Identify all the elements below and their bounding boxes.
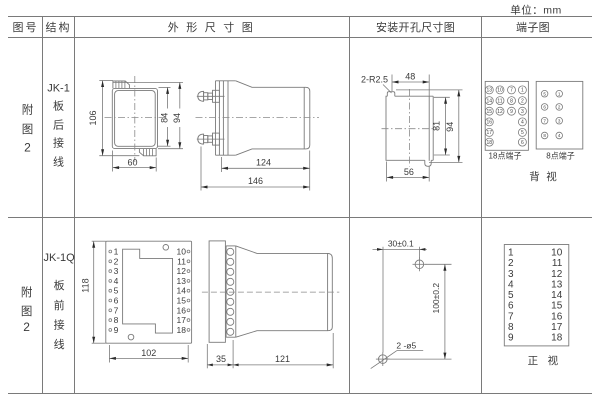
svg-text:正: 正 [528, 355, 539, 367]
svg-text:6: 6 [114, 296, 119, 306]
svg-text:4: 4 [114, 276, 119, 286]
svg-text:11: 11 [497, 98, 502, 104]
svg-text:17: 17 [551, 322, 563, 333]
svg-text:14: 14 [177, 286, 187, 296]
svg-text:线: 线 [54, 337, 65, 351]
svg-text:12: 12 [177, 266, 187, 276]
svg-text:7: 7 [508, 311, 514, 322]
svg-text:9: 9 [114, 325, 119, 335]
svg-text:102: 102 [141, 348, 156, 358]
svg-text:外形尺寸图: 外形尺寸图 [168, 20, 261, 34]
svg-text:81: 81 [432, 121, 442, 131]
svg-text:8: 8 [114, 315, 119, 325]
svg-text:接: 接 [54, 318, 65, 331]
svg-text:12: 12 [551, 269, 563, 280]
svg-text:7: 7 [510, 88, 513, 94]
svg-text:1: 1 [521, 88, 524, 94]
svg-text:3: 3 [114, 266, 119, 276]
svg-text:18点端子: 18点端子 [489, 151, 522, 161]
svg-text:JK-1: JK-1 [47, 83, 70, 95]
svg-text:2: 2 [521, 98, 524, 104]
svg-text:JK-1Q: JK-1Q [44, 252, 76, 264]
svg-text:2: 2 [24, 141, 31, 155]
svg-text:16: 16 [551, 311, 563, 322]
svg-text:7: 7 [114, 305, 119, 315]
svg-text:14: 14 [551, 290, 563, 301]
svg-text:8: 8 [510, 98, 513, 104]
svg-text:16: 16 [177, 305, 187, 315]
svg-text:124: 124 [256, 157, 271, 167]
svg-text:146: 146 [248, 176, 263, 186]
svg-text:13: 13 [177, 276, 187, 286]
svg-text:8点端子: 8点端子 [546, 151, 574, 161]
svg-text:13: 13 [487, 88, 493, 94]
svg-text:10: 10 [551, 248, 563, 259]
svg-text:9: 9 [508, 332, 514, 343]
svg-text:3: 3 [558, 118, 561, 123]
svg-text:板: 板 [54, 278, 65, 292]
svg-text:6: 6 [508, 301, 514, 312]
svg-text:安装开孔尺寸图: 安装开孔尺寸图 [376, 20, 455, 34]
svg-text:17: 17 [487, 130, 493, 136]
svg-text:图: 图 [21, 305, 33, 318]
svg-text:9: 9 [510, 109, 513, 115]
svg-text:3: 3 [521, 109, 524, 115]
svg-text:2-R2.5: 2-R2.5 [361, 75, 388, 85]
svg-text:30±0.1: 30±0.1 [388, 238, 414, 248]
svg-text:结构: 结构 [46, 20, 72, 34]
svg-text:5: 5 [114, 286, 119, 296]
svg-text:1: 1 [558, 91, 561, 96]
svg-text:线: 线 [53, 155, 64, 169]
svg-text:2: 2 [558, 105, 561, 110]
svg-text:18: 18 [177, 325, 187, 335]
svg-text:11: 11 [552, 258, 563, 269]
svg-text:118: 118 [81, 278, 91, 292]
svg-text:17: 17 [177, 315, 187, 325]
svg-text:12: 12 [497, 109, 503, 115]
svg-text:接: 接 [53, 137, 64, 150]
svg-text:图: 图 [22, 123, 34, 136]
svg-text:6: 6 [543, 105, 546, 110]
svg-text:1: 1 [508, 248, 514, 259]
svg-text:11: 11 [177, 256, 186, 266]
svg-text:附: 附 [21, 285, 33, 299]
svg-text:48: 48 [405, 72, 415, 82]
svg-text:4: 4 [508, 279, 514, 290]
svg-text:板: 板 [53, 99, 64, 113]
svg-text:视: 视 [548, 354, 559, 367]
svg-text:2: 2 [508, 258, 514, 269]
svg-text:8: 8 [508, 322, 514, 333]
svg-text:单位：mm: 单位：mm [510, 4, 562, 17]
svg-text:附: 附 [22, 103, 34, 117]
svg-text:端子图: 端子图 [516, 21, 550, 34]
svg-text:5: 5 [543, 91, 546, 96]
svg-text:15: 15 [177, 296, 187, 306]
svg-text:16: 16 [487, 120, 493, 126]
svg-text:106: 106 [88, 110, 98, 125]
svg-text:10: 10 [177, 247, 187, 257]
svg-text:5: 5 [508, 290, 514, 301]
svg-text:3: 3 [508, 269, 514, 280]
svg-text:121: 121 [275, 354, 290, 364]
svg-text:背: 背 [529, 170, 540, 183]
svg-text:94: 94 [445, 122, 455, 132]
svg-text:13: 13 [551, 279, 563, 290]
svg-text:14: 14 [487, 98, 493, 104]
svg-text:10: 10 [497, 88, 503, 94]
svg-text:15: 15 [551, 301, 563, 312]
svg-text:94: 94 [172, 113, 182, 123]
svg-text:视: 视 [546, 170, 557, 183]
svg-text:4: 4 [521, 120, 524, 126]
svg-text:6: 6 [521, 140, 524, 146]
svg-text:100±0.2: 100±0.2 [431, 283, 441, 314]
svg-text:5: 5 [521, 130, 524, 136]
svg-text:2: 2 [114, 256, 119, 266]
svg-text:60: 60 [127, 157, 137, 167]
svg-text:18: 18 [551, 332, 563, 343]
svg-text:1: 1 [114, 247, 119, 257]
svg-text:图号: 图号 [13, 21, 39, 34]
svg-text:2: 2 [23, 320, 30, 334]
svg-text:后: 后 [53, 119, 64, 132]
svg-text:7: 7 [543, 118, 546, 123]
svg-text:35: 35 [216, 354, 226, 364]
svg-text:56: 56 [404, 167, 414, 177]
svg-text:8: 8 [543, 133, 546, 138]
svg-text:2 -ø5: 2 -ø5 [396, 341, 416, 351]
svg-text:15: 15 [487, 109, 493, 115]
svg-text:前: 前 [54, 298, 65, 312]
svg-text:18: 18 [487, 140, 493, 146]
svg-text:4: 4 [558, 133, 561, 138]
svg-text:84: 84 [160, 113, 170, 123]
